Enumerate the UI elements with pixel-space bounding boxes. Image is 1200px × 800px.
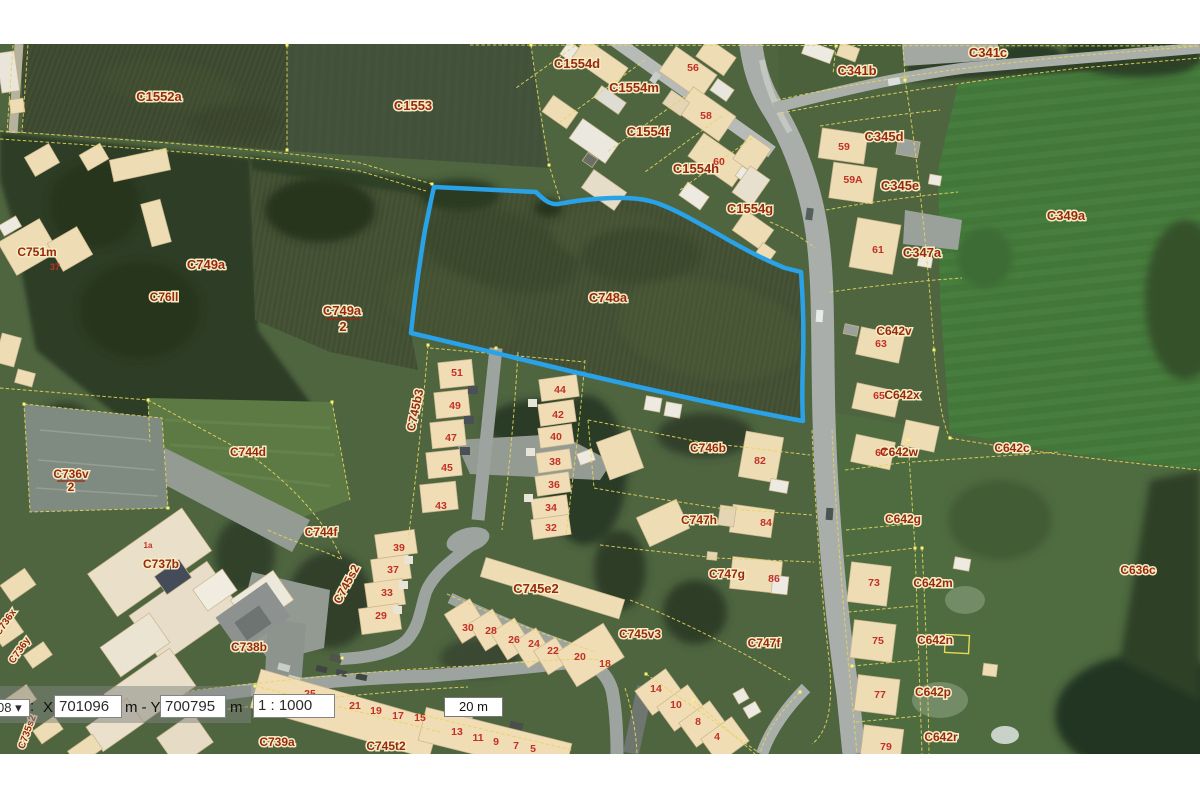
svg-text:C747g: C747g — [709, 567, 745, 581]
svg-text:8: 8 — [695, 716, 701, 728]
svg-text:C1554m: C1554m — [609, 80, 659, 95]
svg-text:7: 7 — [513, 740, 519, 752]
svg-text:C642r: C642r — [924, 730, 958, 744]
svg-text:4: 4 — [714, 731, 720, 743]
svg-text:C1553: C1553 — [394, 98, 432, 113]
svg-text:49: 49 — [449, 400, 461, 412]
svg-text:C747f: C747f — [748, 636, 782, 650]
svg-text:59: 59 — [838, 141, 850, 153]
svg-text:C1552a: C1552a — [136, 89, 182, 104]
svg-text:39: 39 — [393, 542, 405, 554]
svg-text:C642m: C642m — [913, 576, 952, 590]
svg-text:61: 61 — [872, 244, 884, 256]
svg-text:22: 22 — [547, 645, 559, 657]
svg-text:C739a: C739a — [259, 735, 295, 749]
svg-text:C748a: C748a — [589, 290, 628, 305]
svg-text:77: 77 — [874, 689, 886, 701]
svg-text:C1554d: C1554d — [554, 56, 600, 71]
svg-text:67: 67 — [875, 447, 887, 459]
svg-text:C744f: C744f — [305, 525, 339, 539]
svg-text:14: 14 — [650, 683, 662, 695]
svg-text:2: 2 — [339, 319, 346, 334]
svg-text:29: 29 — [375, 610, 387, 622]
svg-text:84: 84 — [760, 517, 772, 529]
svg-text:C749a: C749a — [187, 257, 226, 272]
svg-text:C745t2: C745t2 — [366, 739, 406, 753]
svg-text:2: 2 — [68, 480, 75, 494]
svg-text:28: 28 — [485, 625, 497, 637]
svg-text:C751m: C751m — [17, 245, 56, 259]
svg-text:42: 42 — [552, 409, 564, 421]
svg-text:C737b: C737b — [143, 557, 179, 571]
svg-text:82: 82 — [754, 455, 766, 467]
svg-text:30: 30 — [462, 622, 474, 634]
svg-text:19: 19 — [370, 705, 382, 717]
svg-text:59A: 59A — [843, 174, 863, 186]
svg-text:C1554f: C1554f — [627, 124, 670, 139]
svg-text:51: 51 — [451, 367, 463, 379]
svg-text:5: 5 — [530, 743, 536, 754]
svg-text:56: 56 — [687, 62, 699, 74]
svg-text:C349a: C349a — [1047, 208, 1086, 223]
svg-text:C744d: C744d — [230, 445, 266, 459]
svg-text:10: 10 — [670, 699, 682, 711]
svg-text:C636c: C636c — [1120, 563, 1156, 577]
svg-text:C745v3: C745v3 — [619, 627, 661, 641]
svg-text:9: 9 — [493, 736, 499, 748]
svg-text:C341b: C341b — [837, 63, 876, 78]
svg-text:34: 34 — [545, 502, 557, 514]
svg-text:C345d: C345d — [864, 129, 903, 144]
svg-text:20: 20 — [574, 651, 586, 663]
svg-text:38: 38 — [549, 456, 561, 468]
svg-text:17: 17 — [392, 710, 404, 722]
svg-text:44: 44 — [554, 384, 566, 396]
svg-text:45: 45 — [441, 462, 453, 474]
svg-text:33: 33 — [381, 587, 393, 599]
svg-text:37: 37 — [50, 262, 60, 272]
svg-text:40: 40 — [550, 431, 562, 443]
svg-text:C76ll: C76ll — [150, 290, 179, 304]
svg-text:C341c: C341c — [969, 45, 1007, 60]
svg-text:37: 37 — [387, 564, 399, 576]
svg-text:63: 63 — [875, 338, 887, 350]
svg-text:24: 24 — [528, 638, 540, 650]
svg-text:C749a: C749a — [323, 303, 362, 318]
svg-text:15: 15 — [414, 712, 426, 724]
svg-text:C747h: C747h — [681, 513, 717, 527]
svg-text:C345e: C345e — [881, 178, 919, 193]
svg-text:26: 26 — [508, 634, 520, 646]
svg-text:60: 60 — [713, 156, 725, 168]
svg-text:C736v: C736v — [53, 467, 89, 481]
svg-text:65: 65 — [873, 390, 885, 402]
svg-text:C642c: C642c — [994, 441, 1030, 455]
svg-text:21: 21 — [349, 700, 361, 712]
svg-text:1a: 1a — [144, 541, 153, 550]
svg-text:C347a: C347a — [903, 245, 942, 260]
svg-text:C642v: C642v — [876, 324, 912, 338]
svg-text:58: 58 — [700, 110, 712, 122]
svg-text:13: 13 — [451, 726, 463, 738]
svg-text:36: 36 — [548, 479, 560, 491]
svg-text:75: 75 — [872, 635, 884, 647]
svg-text:86: 86 — [768, 573, 780, 585]
svg-text:79: 79 — [880, 741, 892, 753]
svg-text:C642x: C642x — [884, 388, 920, 402]
svg-text:73: 73 — [868, 577, 880, 589]
svg-text:C746b: C746b — [690, 441, 726, 455]
svg-text:47: 47 — [445, 432, 457, 444]
svg-text:C642p: C642p — [915, 685, 951, 699]
svg-text:C745e2: C745e2 — [513, 581, 559, 596]
svg-text:C738b: C738b — [231, 640, 267, 654]
svg-text:18: 18 — [599, 658, 611, 670]
svg-text:C642n: C642n — [917, 633, 953, 647]
svg-text:C1554g: C1554g — [727, 201, 773, 216]
svg-text:43: 43 — [435, 500, 447, 512]
svg-text:32: 32 — [545, 522, 557, 534]
svg-text:11: 11 — [472, 732, 483, 744]
svg-text:C642g: C642g — [885, 512, 921, 526]
